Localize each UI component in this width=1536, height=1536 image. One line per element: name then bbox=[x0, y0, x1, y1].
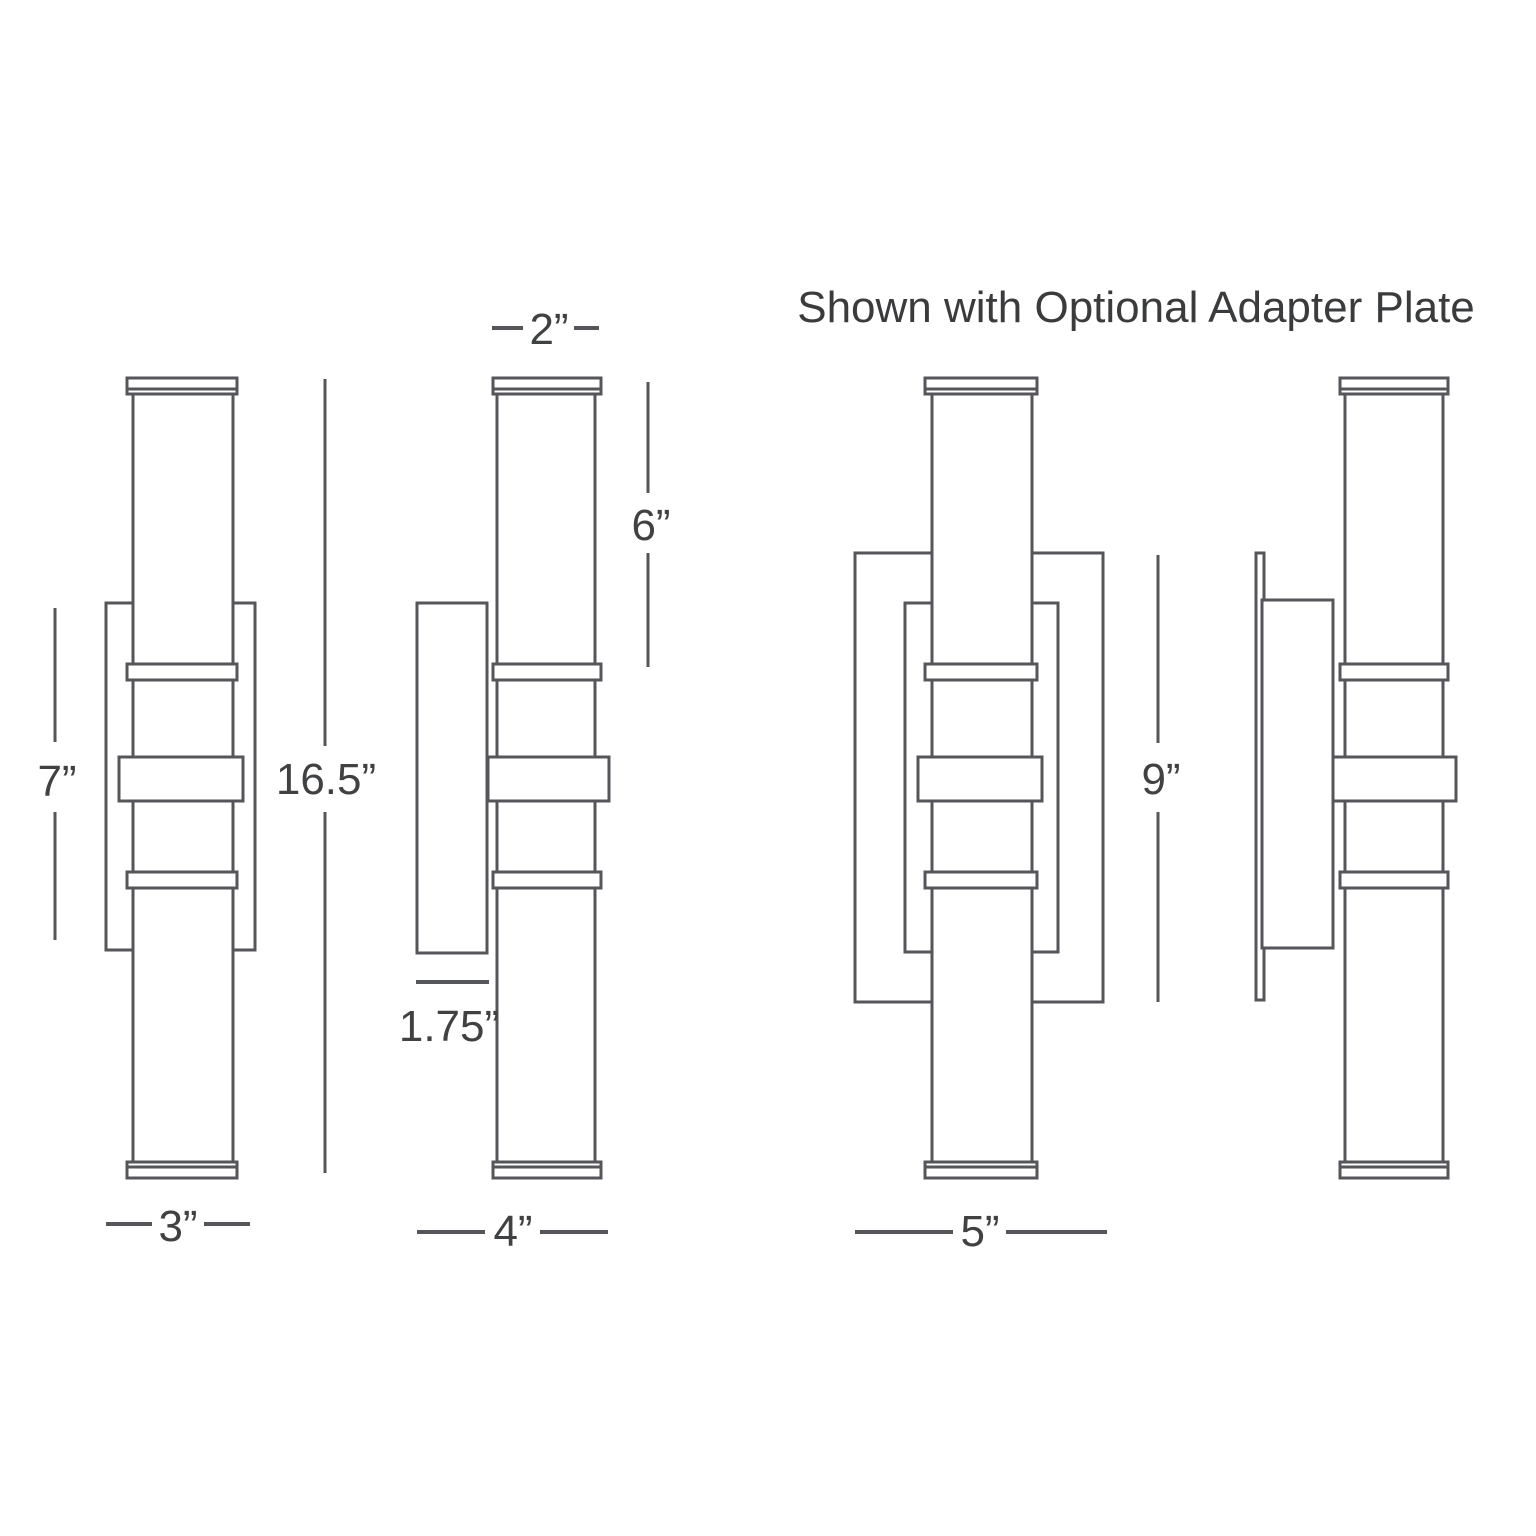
dim-label-overall-height: 16.5” bbox=[276, 755, 376, 804]
dim-label-adapter-plate-width: 5” bbox=[960, 1207, 999, 1256]
dim-label-shade-width: 2” bbox=[529, 305, 568, 354]
lower-collar bbox=[925, 872, 1037, 888]
front-view: 7” 16.5” 3” bbox=[37, 378, 376, 1251]
upper-collar bbox=[127, 664, 237, 680]
top-cap bbox=[493, 378, 601, 394]
side-view-with-adapter-plate bbox=[1256, 378, 1456, 1178]
dim-label-upper-shade-length: 6” bbox=[631, 501, 670, 550]
backplate-side bbox=[417, 603, 487, 953]
center-band bbox=[1333, 757, 1456, 801]
diagram-canvas: Shown with Optional Adapter Plate 7” 16.… bbox=[0, 0, 1536, 1536]
upper-collar bbox=[493, 664, 601, 680]
center-band bbox=[119, 757, 243, 801]
bottom-cap bbox=[925, 1162, 1037, 1178]
backplate-side bbox=[1262, 600, 1333, 948]
top-cap bbox=[925, 378, 1037, 394]
dim-label-overall-depth: 4” bbox=[493, 1207, 532, 1256]
dim-label-overall-width: 3” bbox=[158, 1202, 197, 1251]
side-view: 2” 6” 1.75” 4” bbox=[399, 305, 671, 1256]
top-cap bbox=[1340, 378, 1448, 394]
top-cap bbox=[127, 378, 237, 394]
lower-collar bbox=[493, 872, 601, 888]
lower-collar bbox=[1340, 872, 1448, 888]
dim-label-backplate-height: 7” bbox=[37, 757, 76, 806]
sconce-dimension-diagram: Shown with Optional Adapter Plate 7” 16.… bbox=[0, 0, 1536, 1536]
center-band bbox=[488, 757, 609, 801]
lower-collar bbox=[127, 872, 237, 888]
upper-collar bbox=[1340, 664, 1448, 680]
upper-collar bbox=[925, 664, 1037, 680]
dim-label-adapter-plate-height: 9” bbox=[1141, 755, 1180, 804]
dim-label-backplate-depth: 1.75” bbox=[399, 1002, 499, 1051]
diagram-title: Shown with Optional Adapter Plate bbox=[797, 283, 1475, 332]
bottom-cap bbox=[127, 1162, 237, 1178]
center-band bbox=[918, 757, 1042, 801]
bottom-cap bbox=[493, 1162, 601, 1178]
front-view-with-adapter-plate: 9” 5” bbox=[855, 378, 1181, 1256]
bottom-cap bbox=[1340, 1162, 1448, 1178]
